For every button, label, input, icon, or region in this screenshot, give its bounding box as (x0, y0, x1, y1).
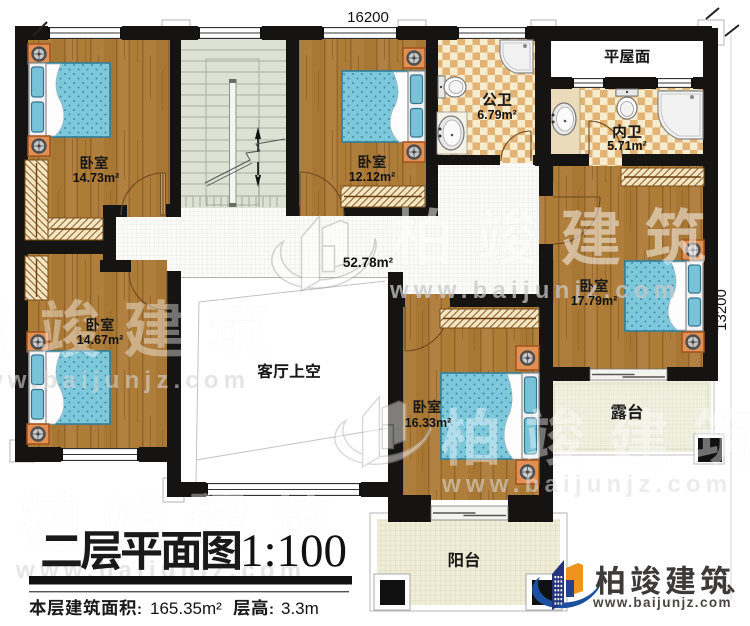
svg-text:www.baijunjz.com: www.baijunjz.com (0, 367, 250, 394)
svg-text:www.baijunjz.com: www.baijunjz.com (441, 471, 732, 498)
svg-text::: : (137, 601, 142, 618)
svg-text:14.73m²: 14.73m² (73, 171, 120, 185)
svg-text:6.79m²: 6.79m² (477, 108, 517, 122)
svg-text:16.33m²: 16.33m² (405, 416, 452, 430)
svg-text:12.12m²: 12.12m² (349, 170, 396, 184)
svg-text:1:100: 1:100 (240, 525, 347, 577)
svg-text::: : (269, 601, 274, 618)
svg-text:14.67m²: 14.67m² (77, 333, 124, 347)
svg-text:165.35m²: 165.35m² (150, 599, 222, 618)
svg-text:16200: 16200 (347, 9, 389, 26)
svg-text:5.71m²: 5.71m² (607, 139, 647, 153)
svg-text:3.3m: 3.3m (281, 599, 319, 618)
svg-text:17.79m²: 17.79m² (571, 294, 618, 308)
svg-text:www.baijunjz.com: www.baijunjz.com (389, 277, 680, 304)
svg-text:13200: 13200 (713, 289, 730, 331)
svg-text:52.78m²: 52.78m² (343, 255, 394, 270)
svg-text:www.baijunjz.com: www.baijunjz.com (592, 595, 732, 610)
